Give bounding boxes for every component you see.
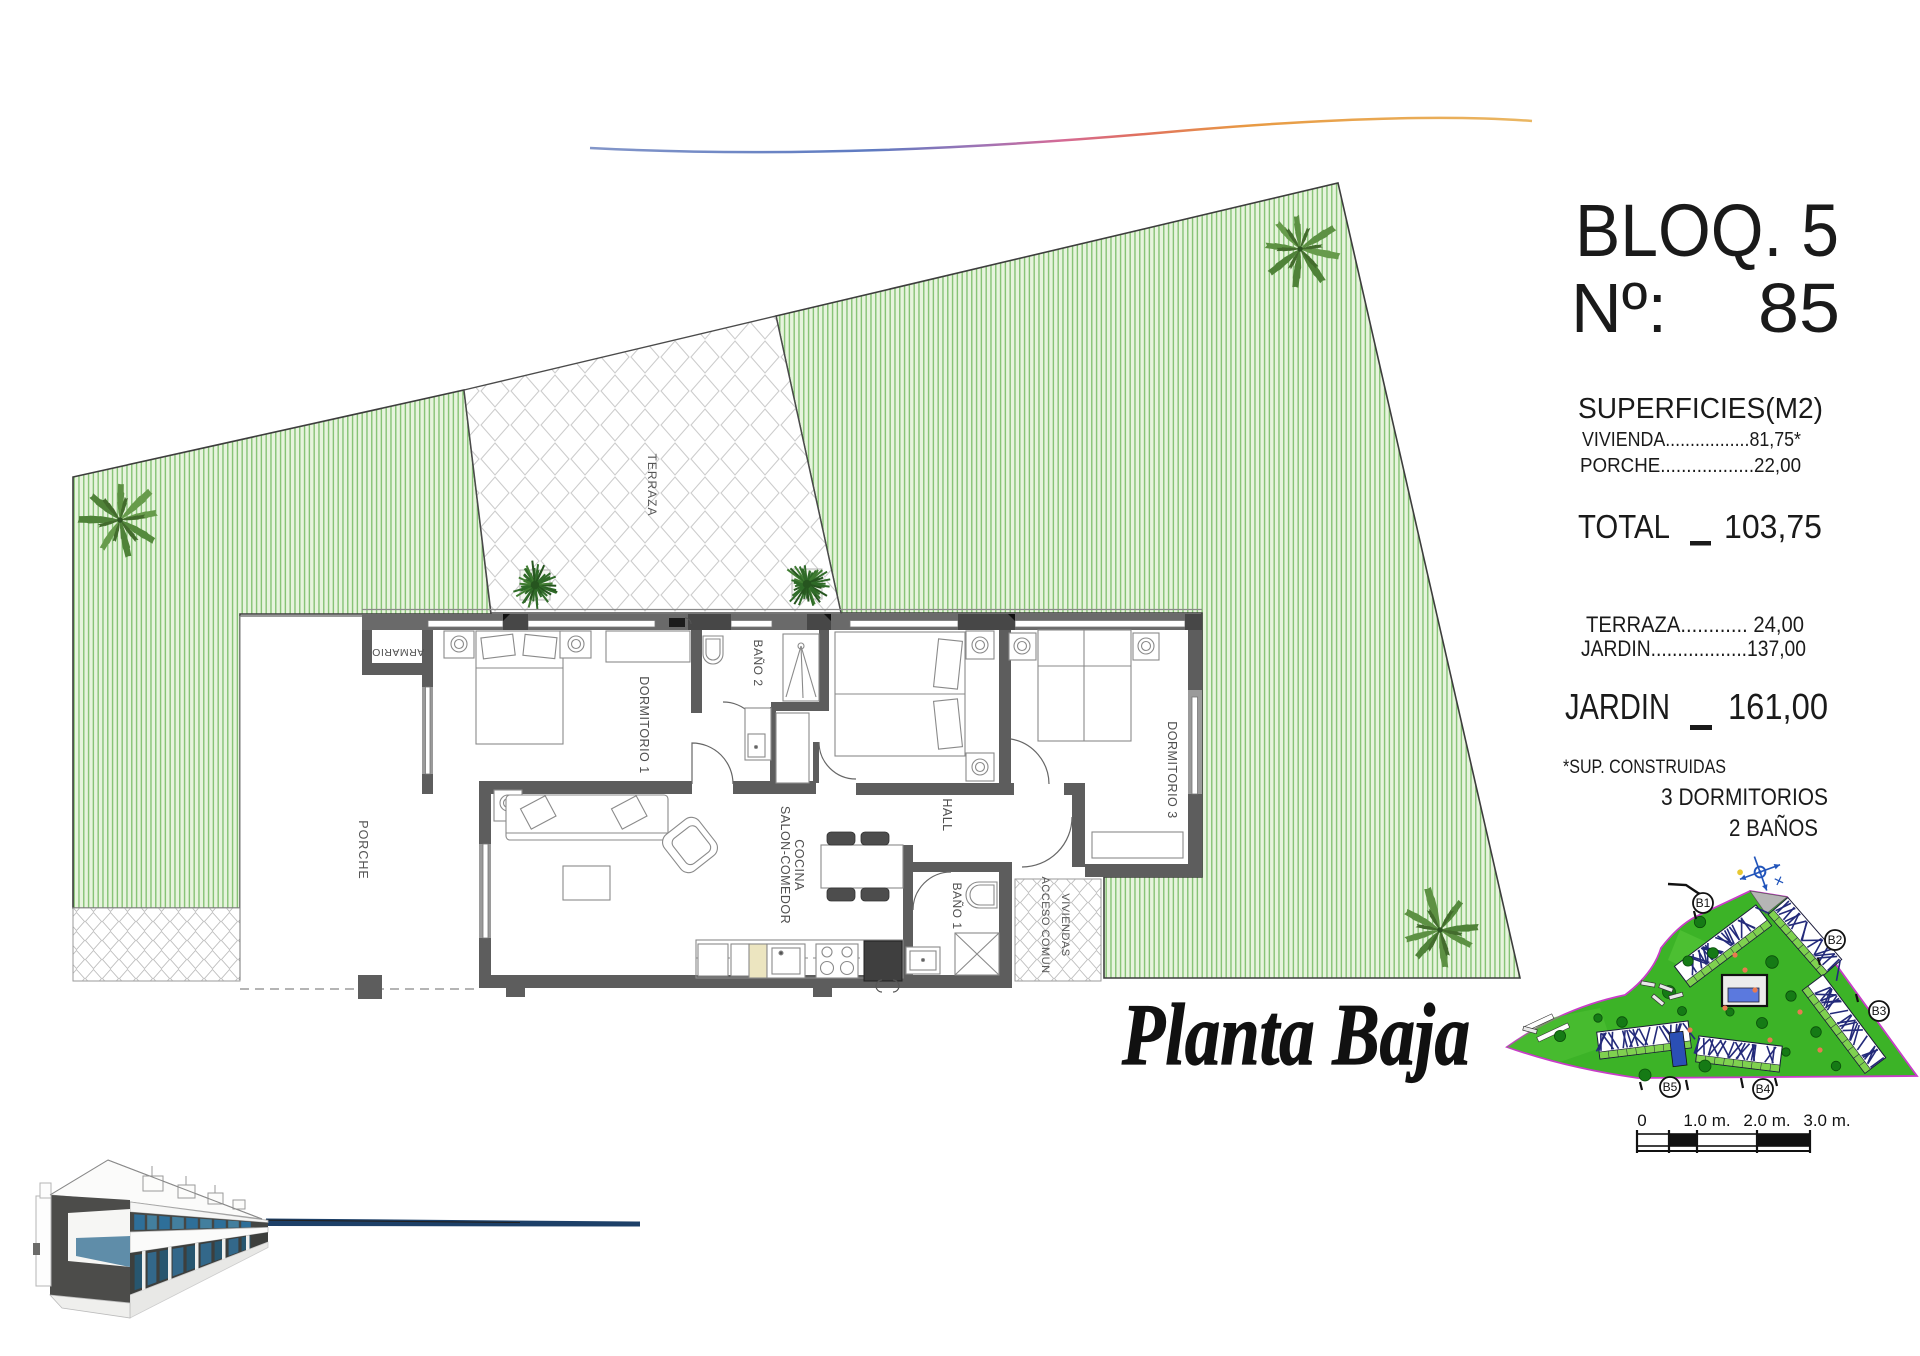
svg-text:2.0 m.: 2.0 m. [1743, 1111, 1790, 1130]
svg-text:Nº:: Nº: [1571, 269, 1667, 347]
svg-text:SUPERFICIES(M2): SUPERFICIES(M2) [1578, 393, 1823, 425]
svg-text:TERRAZA: TERRAZA [645, 453, 659, 516]
svg-text:VIVIENDA.................81,75: VIVIENDA.................81,75* [1582, 429, 1801, 451]
svg-text:BAÑO 2: BAÑO 2 [751, 639, 765, 686]
svg-text:*SUP. CONSTRUIDAS: *SUP. CONSTRUIDAS [1563, 757, 1726, 778]
svg-text:85: 85 [1758, 269, 1840, 347]
svg-text:103,75: 103,75 [1724, 508, 1822, 545]
svg-text:161,00: 161,00 [1728, 686, 1828, 727]
svg-text:3.0 m.: 3.0 m. [1803, 1111, 1850, 1130]
svg-text:DORMITORIO 1: DORMITORIO 1 [637, 676, 651, 773]
svg-text:Planta Baja: Planta Baja [1121, 987, 1470, 1084]
svg-text:TERRAZA............ 24,00: TERRAZA............ 24,00 [1586, 612, 1804, 637]
svg-text:1.0 m.: 1.0 m. [1683, 1111, 1730, 1130]
svg-text:DORMITORIO 3: DORMITORIO 3 [1165, 721, 1179, 818]
svg-text:ARMARIO: ARMARIO [372, 646, 425, 658]
svg-text:HALL: HALL [940, 798, 954, 831]
svg-text:B4: B4 [1756, 1082, 1771, 1096]
svg-text:SALON-COMEDOR: SALON-COMEDOR [778, 806, 792, 924]
svg-text:VIVIENDAS: VIVIENDAS [1059, 893, 1071, 956]
svg-text:B5: B5 [1663, 1080, 1678, 1094]
svg-text:JARDIN: JARDIN [1565, 686, 1670, 727]
svg-text:2 BAÑOS: 2 BAÑOS [1729, 815, 1818, 842]
svg-text:BLOQ. 5: BLOQ. 5 [1575, 189, 1839, 272]
svg-text:B2: B2 [1828, 933, 1843, 947]
svg-text:B3: B3 [1872, 1004, 1887, 1018]
svg-text:BAÑO 1: BAÑO 1 [950, 882, 964, 929]
svg-text:ACCESO COMUN: ACCESO COMUN [1039, 876, 1051, 973]
svg-text:B1: B1 [1696, 896, 1711, 910]
svg-text:JARDIN..................137,00: JARDIN..................137,00 [1581, 636, 1806, 661]
svg-text:TOTAL: TOTAL [1578, 508, 1670, 545]
svg-text:3 DORMITORIOS: 3 DORMITORIOS [1661, 784, 1828, 811]
svg-text:PORCHE..................22,00: PORCHE..................22,00 [1580, 455, 1801, 477]
svg-text:PORCHE: PORCHE [356, 820, 370, 879]
svg-text:0: 0 [1637, 1111, 1646, 1130]
svg-text:COCINA: COCINA [792, 839, 806, 891]
